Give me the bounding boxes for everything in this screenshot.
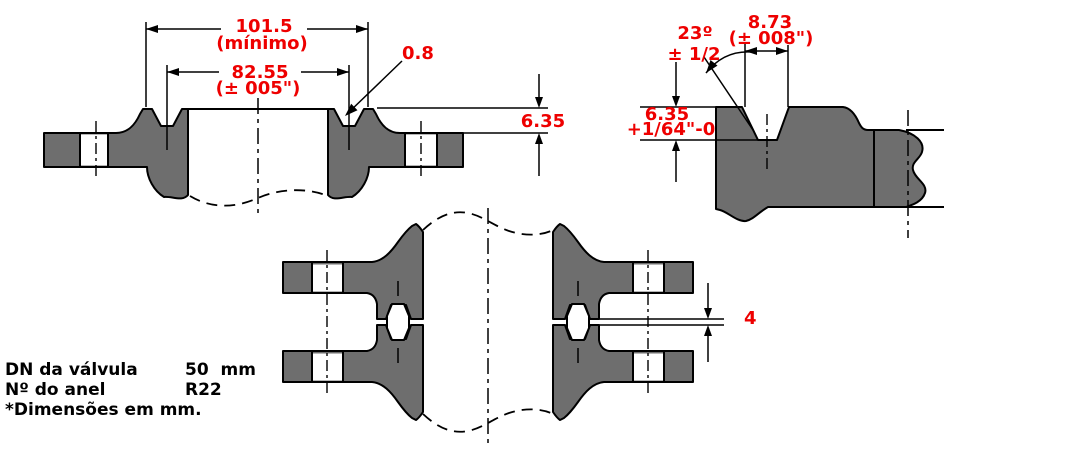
arrowhead bbox=[704, 308, 712, 319]
spec-label-ring: Nº do anel bbox=[5, 380, 185, 400]
flange-face-view: 101.5 (mínimo) 82.55 (± 005") 0.8 6.35 bbox=[44, 16, 565, 214]
arrowhead bbox=[146, 25, 158, 33]
ring-gasket-left bbox=[387, 304, 409, 340]
arrowhead bbox=[535, 97, 543, 108]
arrowhead bbox=[672, 140, 680, 151]
arrowhead bbox=[356, 25, 368, 33]
assembly-view: 4 bbox=[283, 208, 757, 446]
arrowhead bbox=[535, 133, 543, 144]
dim-face-height-value: 6.35 bbox=[521, 111, 565, 132]
dim-groove-depth-tol: +1/64"-0 bbox=[627, 119, 716, 140]
dim-groove-angle-tol: ± 1/2 bbox=[668, 44, 721, 65]
dim-edge-radius-value: 0.8 bbox=[402, 43, 434, 64]
dim-groove-pitch-tol: (± 005") bbox=[216, 78, 301, 99]
spec-row-ring: Nº do anelR22 bbox=[5, 380, 256, 400]
spec-label-dn: DN da válvula bbox=[5, 360, 185, 380]
spec-footnote: *Dimensões em mm. bbox=[5, 400, 256, 420]
spec-value-ring: R22 bbox=[185, 380, 222, 400]
groove-detail-view: 23º ± 1/2 8.73 (± 008") 6.35 +1/64"-0 bbox=[627, 12, 944, 238]
bolt-hole-left bbox=[81, 135, 108, 166]
dim-groove-angle-value: 23º bbox=[677, 23, 712, 44]
arrowhead bbox=[704, 325, 712, 336]
specification-notes: DN da válvula50 mm Nº do anelR22 *Dimens… bbox=[5, 360, 256, 420]
spec-value-dn: 50 mm bbox=[185, 360, 256, 380]
spec-row-dn: DN da válvula50 mm bbox=[5, 360, 256, 380]
ring-gasket-right bbox=[567, 304, 589, 340]
technical-drawing-page: 101.5 (mínimo) 82.55 (± 005") 0.8 6.35 2… bbox=[0, 0, 1066, 457]
dim-groove-width-tol: (± 008") bbox=[729, 28, 814, 49]
arrowhead bbox=[167, 68, 179, 76]
leader-line bbox=[347, 61, 402, 114]
dim-outer-width-note: (mínimo) bbox=[216, 33, 308, 54]
arrowhead bbox=[337, 68, 349, 76]
pipe-break-line bbox=[190, 190, 328, 205]
groove-detail-section bbox=[716, 107, 925, 221]
dim-flange-gap-value: 4 bbox=[744, 308, 757, 329]
